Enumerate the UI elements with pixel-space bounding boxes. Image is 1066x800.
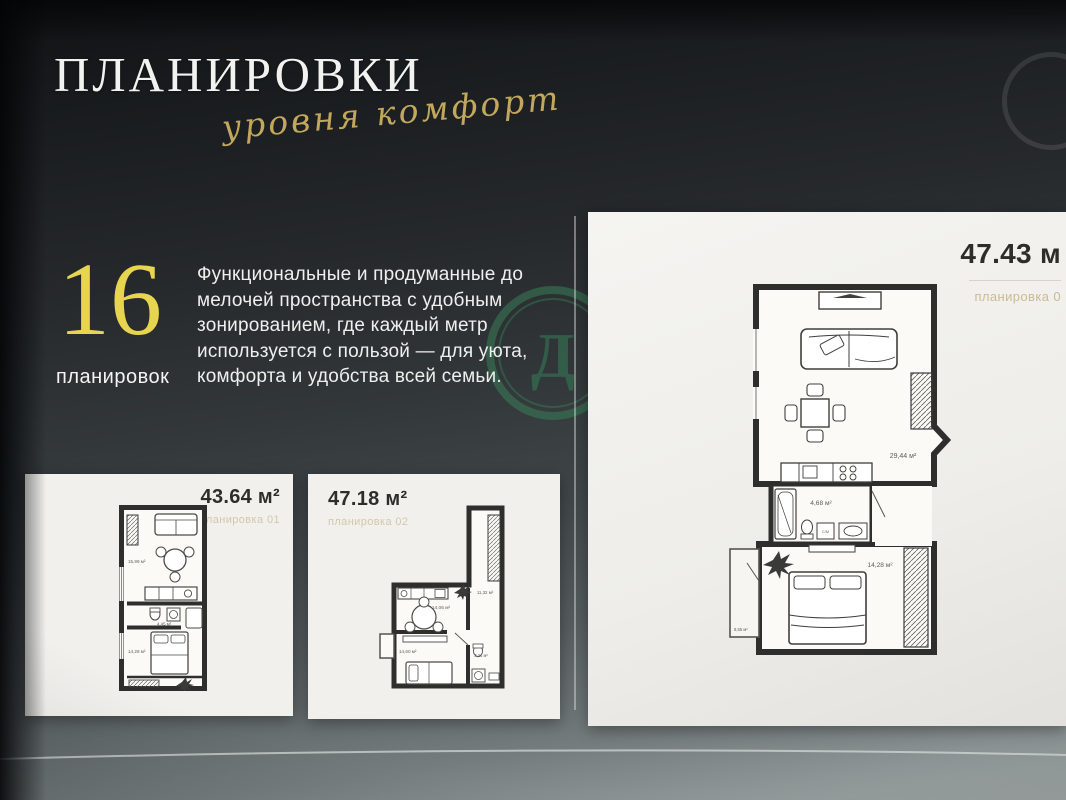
floorplan-drawing-02: 14,06 м² 11,32 м² 14,60 м² 3,21 м² xyxy=(377,505,527,701)
brochure-page: ПЛАНИРОВКИ уровня комфорт 16 планировок … xyxy=(0,0,1066,800)
floorplan-card-02: 47.18 м² планировка 02 xyxy=(308,474,560,719)
floorplan-drawing-03: 29,44 м² 4,68 м² 14,28 м² 8,55 м² С/М xyxy=(721,281,951,659)
room-area-label: 14,06 м² xyxy=(432,605,451,611)
plan-label: планировка 01 xyxy=(200,514,280,526)
room-area-label: 4,45 м² xyxy=(157,622,172,627)
stat-number: 16 xyxy=(58,248,162,352)
header-divider xyxy=(969,280,1061,281)
floorplan-drawing-01: 15,99 м² 4,45 м² 14,28 м² xyxy=(119,505,207,691)
description-text: Функциональные и продуманные до мелочей … xyxy=(197,262,535,390)
room-area-label: 14,60 м² xyxy=(399,649,417,654)
vertical-divider-line xyxy=(574,216,576,710)
area-value: 47.43 м xyxy=(960,238,1061,270)
room-area-label: 15,99 м² xyxy=(128,559,146,564)
washer-label: С/М xyxy=(822,530,829,534)
corner-circle-decoration xyxy=(1002,52,1066,150)
room-area-label: 3,21 м² xyxy=(474,653,488,658)
room-area-label: 4,68 м² xyxy=(810,500,832,507)
room-area-label: 29,44 м² xyxy=(890,453,917,460)
floorplan-card-01: 43.64 м² планировка 01 xyxy=(25,474,293,716)
bottom-curve-line xyxy=(0,738,1066,778)
room-area-label: 14,28 м² xyxy=(128,649,146,654)
stat-label: планировок xyxy=(56,366,169,389)
floorplan-card-03: 47.43 м планировка 0 xyxy=(588,212,1066,726)
plan-label: планировка 0 xyxy=(960,289,1061,304)
area-value: 43.64 м² xyxy=(200,486,280,509)
room-area-label: 8,55 м² xyxy=(734,627,748,632)
room-area-label: 11,32 м² xyxy=(477,590,494,595)
room-area-label: 14,28 м² xyxy=(867,562,893,569)
